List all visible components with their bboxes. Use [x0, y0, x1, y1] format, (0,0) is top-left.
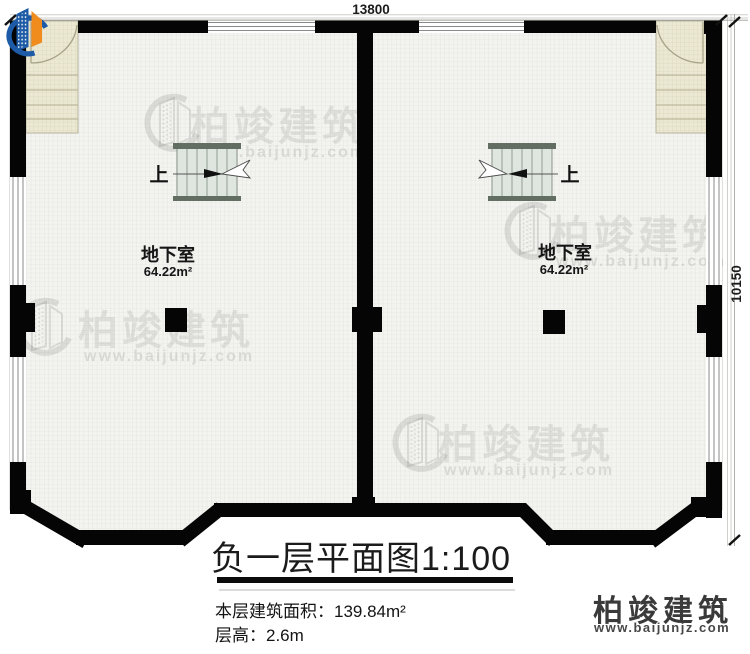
column [543, 310, 565, 334]
dimension-label-right: 10150 [729, 265, 744, 303]
watermark-url: www.baijunjz.com [83, 348, 254, 365]
watermark-url: www.baijunjz.com [443, 462, 614, 479]
window-top-left [208, 20, 315, 33]
room-area: 64.22m² [144, 264, 193, 279]
watermark-brand: 柏竣建筑 [438, 423, 614, 467]
watermark-brand: 柏竣建筑 [190, 105, 366, 149]
logo-url-text: www.baijunjz.com [594, 620, 730, 635]
title-underline [217, 577, 513, 583]
title-underline-shadow [219, 589, 515, 591]
window-top-right [419, 20, 524, 33]
stair-top-rail [173, 143, 241, 149]
stair-up-label: 上 [149, 164, 168, 186]
dimension-label-top: 13800 [352, 2, 390, 17]
stair-up-label: 上 [560, 164, 579, 186]
stair-top-rail [488, 143, 556, 149]
stair-bottom-rail [488, 196, 556, 201]
floorplan-page: 柏竣建筑 www.baijunjz.com 柏竣建筑 www.baijunjz.… [0, 0, 750, 654]
room-area: 64.22m² [540, 262, 589, 277]
room-name: 地下室 [538, 242, 592, 263]
window-left-lower [10, 357, 26, 462]
room-name: 地下室 [141, 244, 195, 265]
window-left-upper [10, 177, 26, 285]
page-title: 负一层平面图1:100 [211, 531, 511, 580]
window-right-lower [706, 357, 722, 462]
building-area-text: 本层建筑面积：139.84m² [215, 597, 406, 622]
stair-bottom-rail [173, 196, 241, 201]
floorplan-drawing: 柏竣建筑 www.baijunjz.com 柏竣建筑 www.baijunjz.… [0, 0, 750, 560]
column [165, 308, 187, 332]
logo-building-icon [0, 0, 48, 58]
floor-height-text: 层高：2.6m [215, 621, 304, 646]
window-right-upper [706, 177, 722, 285]
entry-stair-top-right [656, 21, 708, 133]
